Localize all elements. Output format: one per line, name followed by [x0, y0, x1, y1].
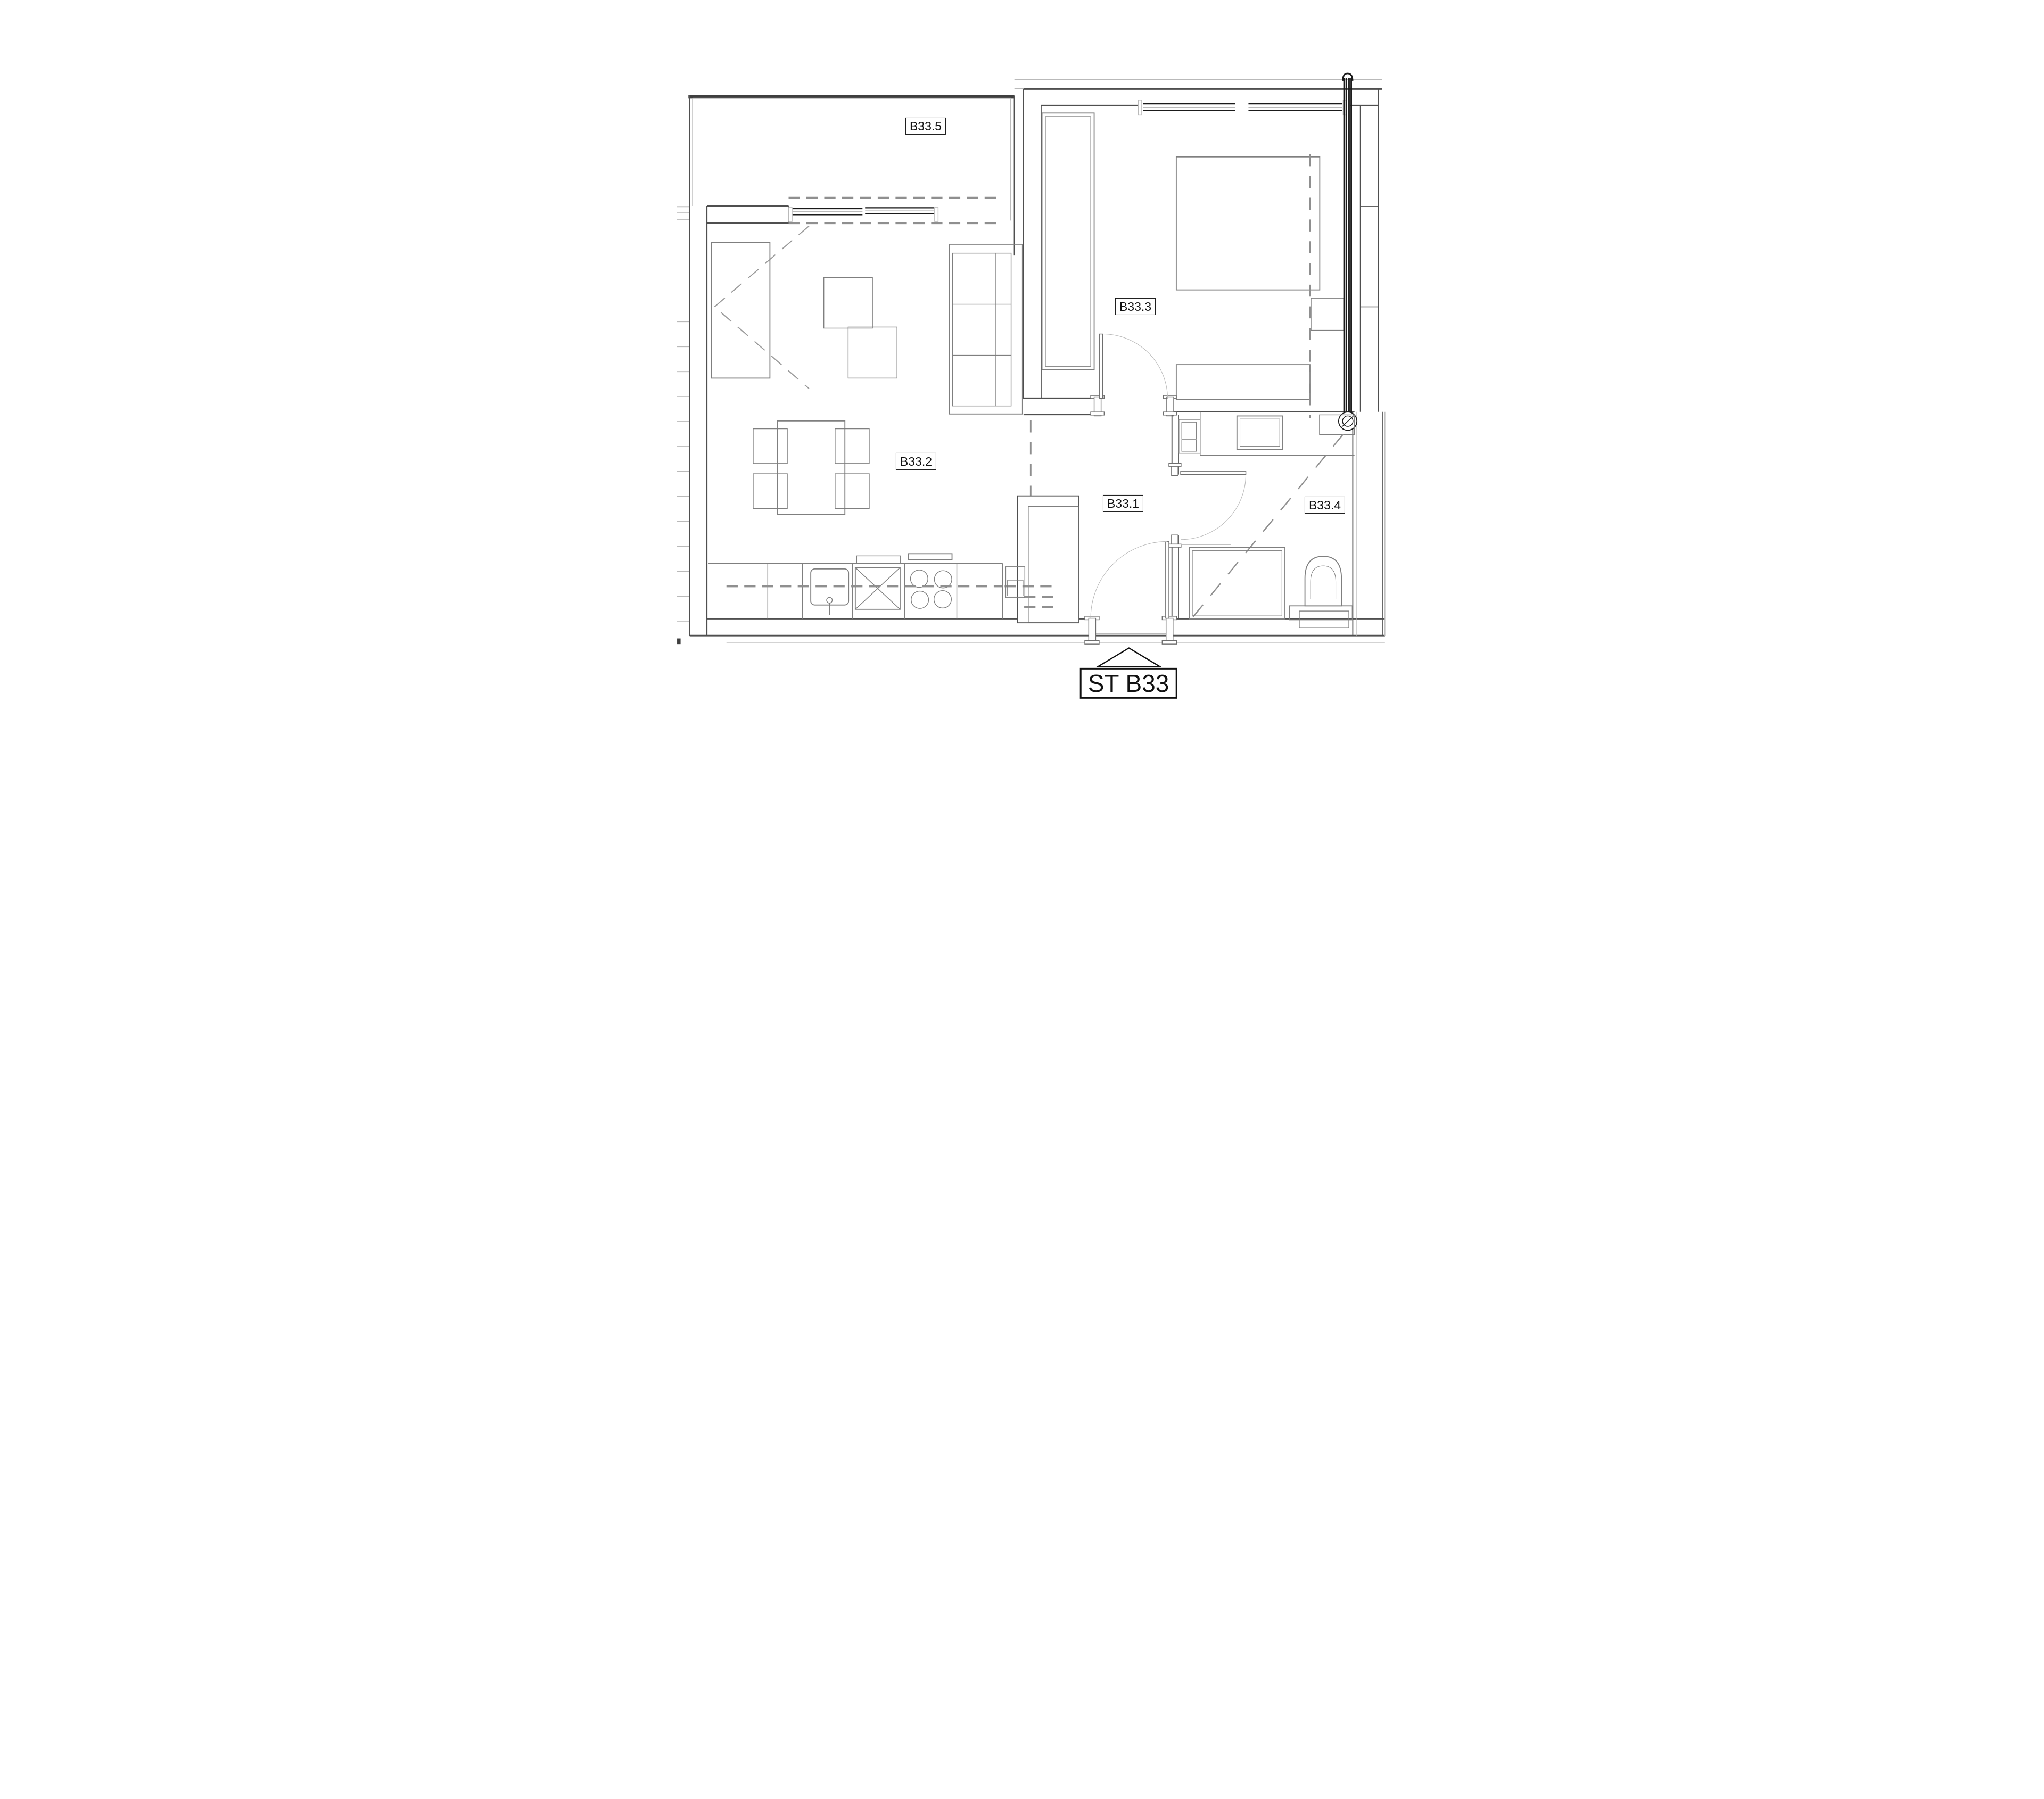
left-wall-ticks [677, 207, 689, 621]
wardrobe-opening-dashed [714, 226, 809, 389]
bathroom-door-leaf [1181, 471, 1246, 474]
entrance-door-leaf [1166, 541, 1169, 618]
chair [835, 474, 869, 508]
chair [835, 429, 869, 464]
bedroom-furniture [1042, 113, 1344, 418]
shower-tray [1189, 548, 1285, 619]
living-wardrobe [711, 242, 770, 378]
chair [753, 429, 787, 464]
bedroom-bench [1176, 365, 1310, 399]
hall-partition [1018, 420, 1079, 623]
entrance-door-swing-arc [1091, 541, 1167, 618]
corner-mark [677, 639, 681, 645]
wall-cabinet [856, 556, 900, 563]
entrance-label: ST B33 [1080, 668, 1177, 699]
tall-cabinet [1018, 496, 1079, 623]
sofa [950, 244, 1023, 414]
balcony-outline [693, 96, 1015, 255]
room-label-bedroom: B33.3 [1115, 298, 1156, 315]
nightstand [1311, 298, 1344, 330]
bedroom-door-swing-arc [1102, 334, 1167, 399]
floor-plan-drawing: * [605, 0, 1439, 735]
kitchen-asterisk-symbol: * [742, 564, 755, 600]
dining-set [753, 421, 869, 515]
bedroom-window [1138, 100, 1347, 115]
bathroom-walls [1172, 415, 1178, 619]
bed [1176, 157, 1320, 290]
bedroom-door [1091, 334, 1177, 416]
pipe-column [1339, 73, 1357, 430]
coffee-table-2 [848, 327, 897, 378]
kitchen: * [708, 554, 1058, 618]
room-label-bathroom: B33.4 [1305, 497, 1345, 514]
extractor-hood [909, 554, 952, 559]
room-label-living: B33.2 [896, 453, 936, 470]
washbasin [1179, 419, 1200, 453]
washing-machine [1237, 416, 1283, 449]
balcony-window [707, 198, 999, 224]
toilet [1289, 556, 1352, 628]
bathroom-fixtures [1179, 412, 1355, 628]
bathroom-door [1169, 463, 1246, 547]
room-label-balcony: B33.5 [905, 118, 946, 135]
kitchen-faucet [827, 597, 833, 603]
chair [753, 474, 787, 508]
coffee-table-1 [824, 277, 872, 328]
entrance-triangle-marker [1098, 648, 1160, 667]
floor-plan: * [605, 0, 1439, 735]
bathroom-door-swing-arc [1181, 474, 1246, 539]
stove-burners [911, 570, 952, 608]
entrance-door [1085, 541, 1176, 644]
bedroom-wardrobe [1042, 113, 1094, 370]
living-room-furniture [711, 226, 1023, 515]
bedroom-door-leaf [1100, 334, 1103, 399]
room-label-hall: B33.1 [1103, 495, 1143, 512]
